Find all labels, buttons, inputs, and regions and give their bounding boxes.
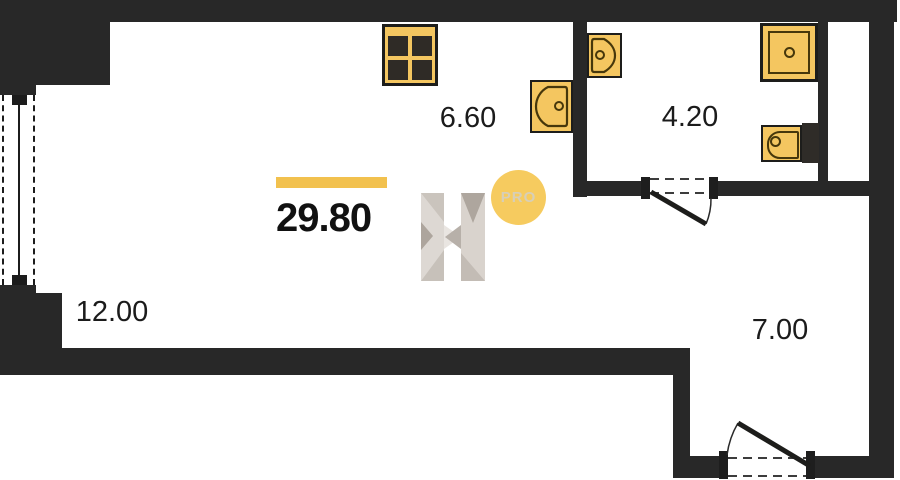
window-cap-top	[0, 85, 36, 95]
wall-bathroom-bottom-left	[573, 181, 644, 196]
watermark-pro-badge: PRO	[491, 170, 546, 225]
kitchen-sink-icon	[530, 80, 573, 133]
room-label-living: 12.00	[70, 296, 154, 329]
wall-block-bottom-left	[0, 293, 62, 375]
toilet-drain-icon	[770, 136, 781, 147]
bathroom-sink-basin	[589, 35, 620, 76]
floor-plan: 6.60 4.20 12.00 7.00 29.80 PRO	[0, 0, 900, 480]
stove-burner-icon	[412, 60, 432, 80]
wall-top	[0, 0, 897, 22]
wall-step-connector	[673, 348, 690, 478]
stove-burner-icon	[388, 60, 408, 80]
bathroom-door	[640, 168, 740, 240]
shower-icon	[760, 23, 818, 82]
toilet-icon	[761, 125, 802, 162]
toilet-cistern	[802, 123, 819, 163]
wall-shaft-divider	[818, 20, 828, 181]
wall-bathroom-left	[573, 20, 587, 197]
wall-block-top-left	[0, 0, 110, 85]
door-leaf	[738, 423, 810, 466]
room-label-hall: 7.00	[740, 314, 820, 347]
door-leaf	[651, 192, 706, 224]
stove-burner-icon	[388, 36, 408, 56]
watermark-h-logo-icon	[421, 193, 486, 281]
watermark-pro-badge-label: PRO	[501, 189, 537, 206]
entry-door	[700, 412, 820, 480]
room-label-kitchen: 6.60	[428, 102, 508, 135]
stove-icon	[382, 24, 438, 86]
kitchen-sink-basin	[532, 82, 571, 131]
stove-burner-icon	[412, 36, 432, 56]
wall-right	[869, 0, 894, 478]
door-swing-arc	[706, 198, 711, 224]
total-area-label: 29.80	[276, 196, 371, 241]
window-glass-line	[18, 101, 20, 279]
shower-drain-icon	[784, 47, 795, 58]
door-swing-arc	[727, 423, 738, 455]
bathroom-sink-icon	[587, 33, 622, 78]
total-area-accent-bar	[276, 177, 387, 188]
wall-bathroom-bottom-right	[716, 181, 894, 196]
window-frame-top	[12, 95, 27, 105]
wall-bottom-main	[62, 348, 690, 375]
window-frame-bottom	[12, 275, 27, 285]
room-label-bathroom: 4.20	[650, 101, 730, 134]
window-left	[2, 95, 35, 285]
